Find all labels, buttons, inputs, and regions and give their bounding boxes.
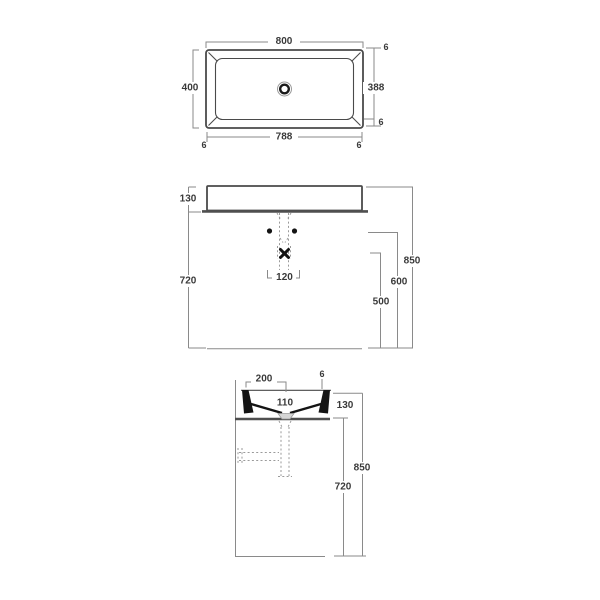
corner-bevel-line <box>352 117 361 126</box>
basin-wall-section <box>319 390 331 414</box>
side-basin-height-label: 130 <box>337 400 354 411</box>
drain-pipe-dashed <box>280 238 283 243</box>
front-faucet-height-dim-line <box>368 233 398 349</box>
faucet-hole-icon <box>267 228 272 233</box>
front-drain-offset-label: 120 <box>276 272 293 283</box>
corner-bevel-line <box>209 53 218 62</box>
plan-inner-depth-label: 388 <box>368 83 385 94</box>
waste-outlet-icon <box>281 250 289 258</box>
technical-drawing-canvas: 800 400 388 6 6 788 6 6 <box>0 0 600 600</box>
corner-bevel-line <box>352 53 361 62</box>
drain-pipe-dashed <box>285 238 288 243</box>
plan-inner-width-label: 788 <box>276 132 293 143</box>
plan-width-label: 800 <box>276 36 293 47</box>
plan-rim-bottom-left-label: 6 <box>201 140 206 150</box>
plan-rim-right-top-label: 6 <box>383 42 388 52</box>
plan-rim-right-bottom-label: 6 <box>378 117 383 127</box>
side-total-height-label: 850 <box>354 463 371 474</box>
dim-hook <box>268 270 273 278</box>
side-view: 200 6 110 130 850 720 <box>235 369 375 557</box>
washbasin-drawing: 800 400 388 6 6 788 6 6 <box>0 0 600 600</box>
front-faucet-height-label: 600 <box>391 277 408 288</box>
front-total-height-label: 850 <box>404 256 421 267</box>
plan-depth-label: 400 <box>182 83 199 94</box>
side-edge-to-drain-label: 200 <box>256 374 273 385</box>
front-stand-height-label: 720 <box>180 276 197 287</box>
faucet-hole-icon <box>292 228 297 233</box>
front-basin-height-label: 130 <box>180 194 197 205</box>
plan-view: 800 400 388 6 6 788 6 6 <box>177 36 389 150</box>
drain-funnel-dashed <box>279 421 282 427</box>
side-inner-depth-label: 110 <box>277 398 294 409</box>
front-view: 130 720 850 600 500 120 <box>175 186 425 349</box>
basin-front-outline <box>207 186 362 211</box>
corner-bevel-line <box>209 117 218 126</box>
side-rim-label: 6 <box>319 369 324 379</box>
drain-funnel-dashed <box>288 421 291 427</box>
front-total-height-dim-line <box>366 187 413 348</box>
front-outlet-height-label: 500 <box>373 297 390 308</box>
side-stand-height-label: 720 <box>335 482 352 493</box>
drain-icon <box>280 85 289 94</box>
plan-rim-bottom-right-label: 6 <box>356 140 361 150</box>
basin-wall-section <box>242 390 254 414</box>
